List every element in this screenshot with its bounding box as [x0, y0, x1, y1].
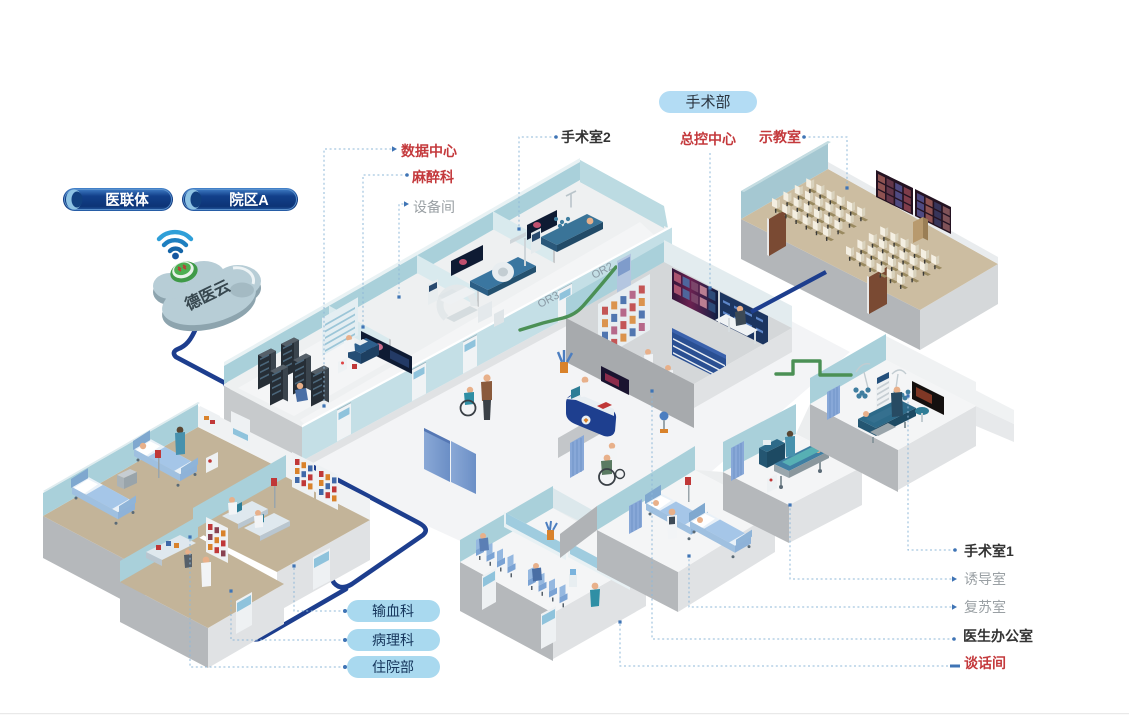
- svg-text:病理科: 病理科: [372, 632, 414, 648]
- svg-text:院区A: 院区A: [229, 191, 269, 209]
- svg-text:诱导室: 诱导室: [964, 571, 1006, 587]
- svg-text:麻醉科: 麻醉科: [411, 169, 454, 185]
- svg-text:医生办公室: 医生办公室: [963, 628, 1033, 644]
- svg-text:医联体: 医联体: [105, 191, 149, 209]
- svg-text:数据中心: 数据中心: [401, 143, 457, 159]
- svg-text:输血科: 输血科: [372, 603, 414, 619]
- svg-text:手术室1: 手术室1: [964, 543, 1014, 559]
- svg-text:复苏室: 复苏室: [964, 599, 1006, 615]
- svg-text:手术室2: 手术室2: [561, 129, 611, 145]
- svg-text:手术部: 手术部: [685, 94, 730, 111]
- svg-text:设备间: 设备间: [413, 199, 455, 215]
- svg-text:示教室: 示教室: [759, 129, 801, 145]
- svg-text:总控中心: 总控中心: [680, 131, 736, 147]
- svg-text:住院部: 住院部: [372, 659, 414, 675]
- svg-text:谈话间: 谈话间: [964, 655, 1006, 671]
